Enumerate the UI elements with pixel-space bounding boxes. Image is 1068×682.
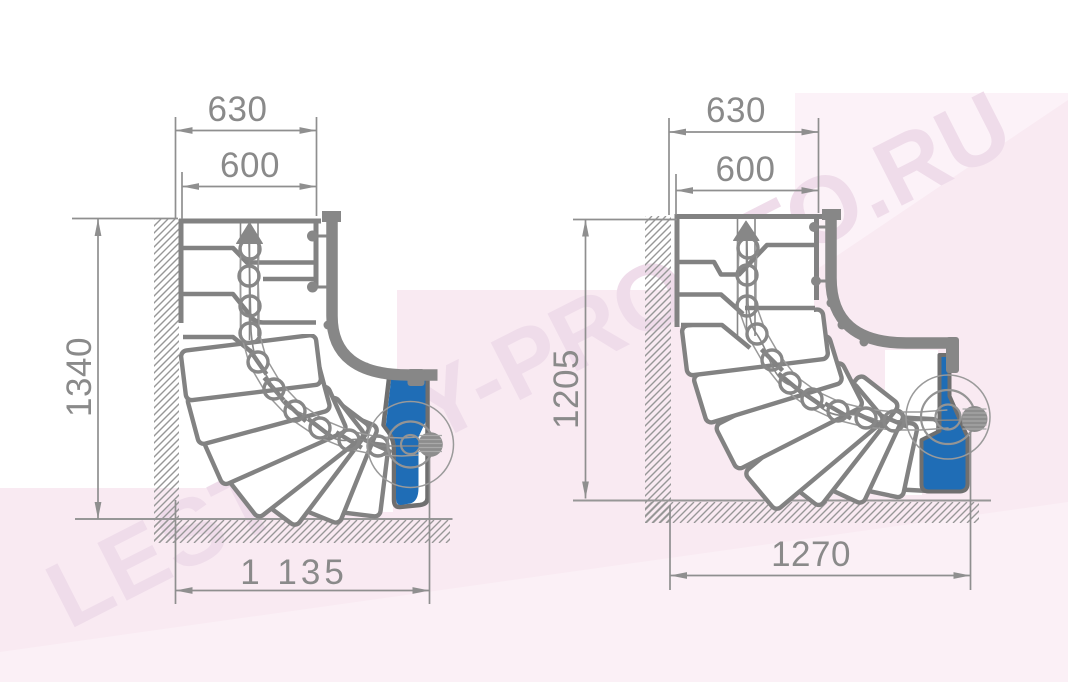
svg-text:600: 600 bbox=[716, 150, 776, 189]
svg-text:1340: 1340 bbox=[60, 337, 99, 417]
svg-text:1270: 1270 bbox=[771, 535, 851, 574]
svg-text:1 135: 1 135 bbox=[240, 553, 348, 592]
svg-text:1205: 1205 bbox=[547, 349, 586, 429]
svg-text:630: 630 bbox=[208, 90, 268, 129]
svg-text:630: 630 bbox=[706, 91, 766, 130]
svg-text:600: 600 bbox=[220, 146, 280, 185]
